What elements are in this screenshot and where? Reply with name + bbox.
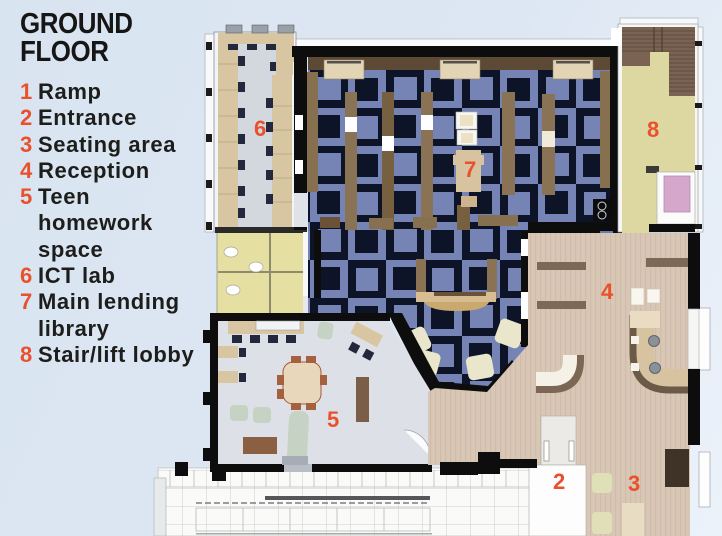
svg-text:4: 4 xyxy=(601,279,614,304)
svg-text:8: 8 xyxy=(647,117,659,142)
svg-text:3: 3 xyxy=(628,471,640,496)
svg-text:2: 2 xyxy=(553,469,565,494)
svg-text:7: 7 xyxy=(464,157,476,182)
svg-text:5: 5 xyxy=(327,407,339,432)
svg-text:6: 6 xyxy=(254,116,266,141)
